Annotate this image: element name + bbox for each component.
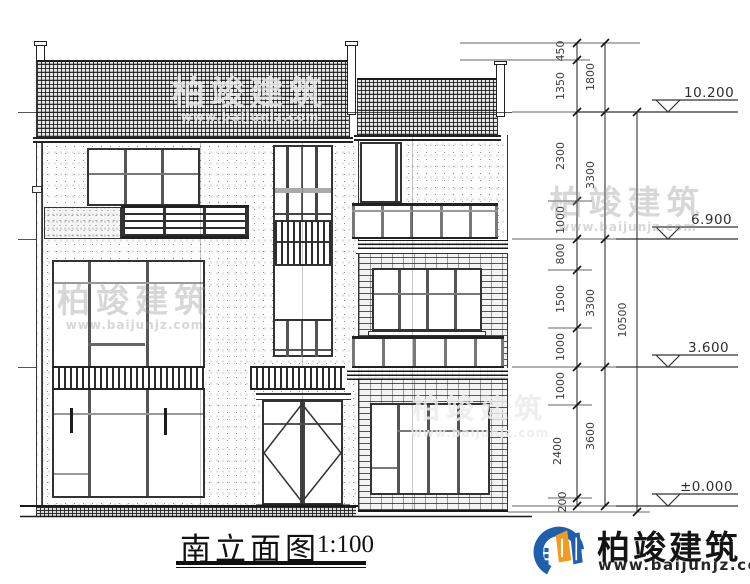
dimension-ticks <box>573 39 641 516</box>
level-markers <box>578 100 738 506</box>
dimension-linework <box>0 0 750 584</box>
extension-lines <box>460 43 650 512</box>
ground-lines <box>20 505 532 517</box>
logo-window-slit <box>575 538 577 561</box>
company-logo-icon <box>531 521 593 581</box>
elevation-drawing-sheet: 450 1350 2300 1000 800 1500 1000 1000 24… <box>0 0 750 584</box>
dimension-chains <box>577 43 637 512</box>
logo-window-slit <box>561 539 563 558</box>
door-diamond-glazing <box>264 404 341 502</box>
